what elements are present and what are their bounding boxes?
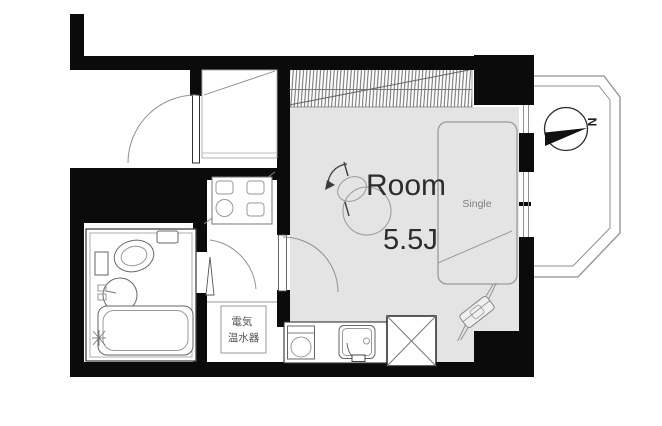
window-mullion	[519, 202, 531, 206]
kitchen-sink	[339, 326, 375, 362]
heater-label-line1: 電気	[232, 315, 253, 328]
door-leaf	[279, 235, 287, 291]
closet	[283, 68, 472, 107]
bathtub	[98, 306, 193, 355]
floor-plan: 電気 温水器 Single	[0, 0, 662, 426]
wall-segment	[70, 362, 534, 377]
heater-box	[221, 306, 266, 353]
heater-label-line2: 温水器	[228, 332, 260, 344]
room-label: Room	[366, 169, 446, 202]
kitchen	[284, 316, 436, 366]
paper-holder	[95, 252, 108, 275]
wall-segment	[70, 56, 474, 70]
single-bed: Single	[438, 122, 517, 284]
bathroom	[86, 229, 196, 361]
bathtub-rim	[98, 306, 193, 355]
compass-n-label: N	[585, 118, 599, 127]
door-leaf	[193, 95, 200, 163]
refrigerator-space	[387, 316, 436, 366]
wall-segment	[519, 133, 534, 172]
faucet-base	[352, 355, 365, 362]
toilet-shelf	[157, 231, 178, 243]
wall-segment	[474, 55, 534, 105]
room-size-label: 5.5J	[383, 224, 438, 256]
shower-head-icon	[92, 330, 106, 346]
kitchen-stove	[288, 326, 315, 359]
floor-plan-svg: 電気 温水器 Single	[0, 0, 662, 426]
wall-segment	[190, 70, 202, 96]
wall-segment	[277, 70, 290, 180]
bed-label: Single	[462, 198, 491, 210]
wall-segment	[277, 180, 290, 235]
shoe-cabinet	[202, 70, 277, 158]
wall-segment	[70, 168, 207, 223]
washing-machine-pan	[204, 172, 275, 224]
